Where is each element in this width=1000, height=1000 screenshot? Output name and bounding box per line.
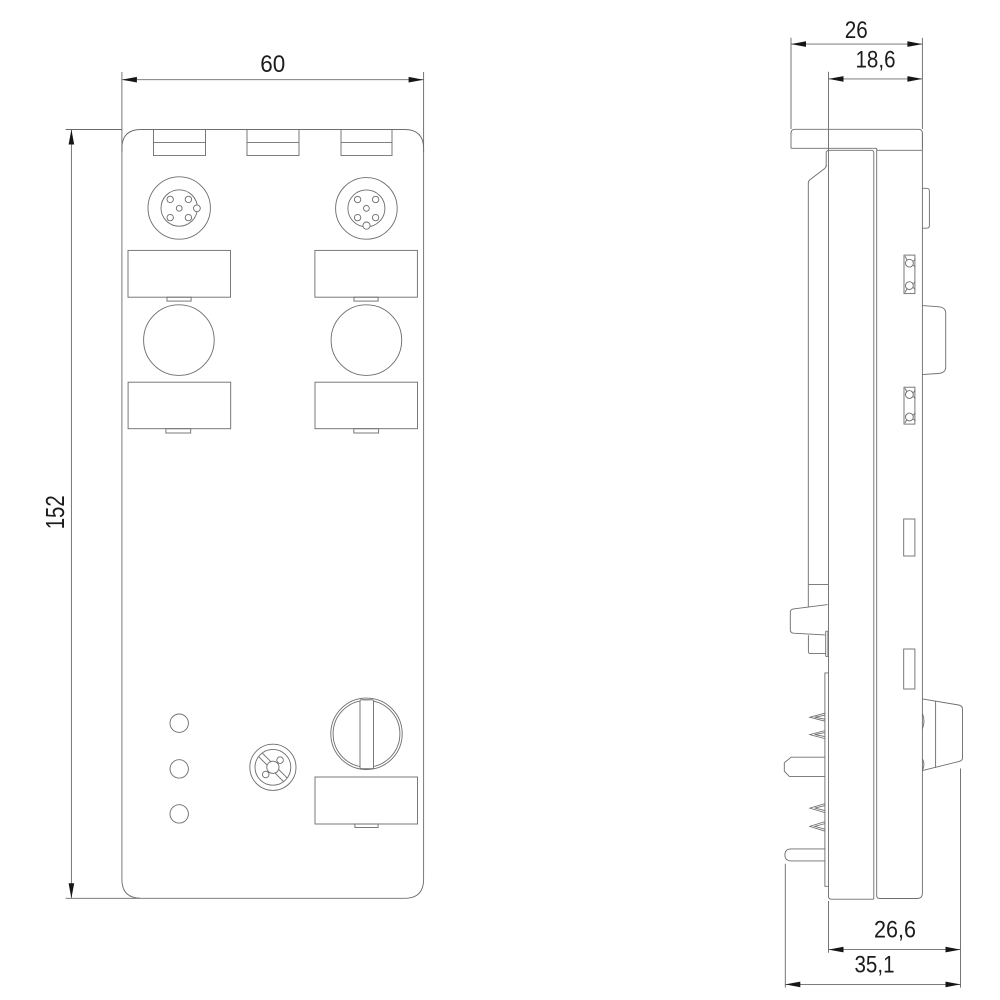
svg-text:60: 60	[260, 51, 285, 78]
svg-text:35,1: 35,1	[855, 952, 895, 979]
svg-text:26: 26	[845, 17, 868, 44]
svg-text:152: 152	[40, 495, 70, 529]
svg-text:26,6: 26,6	[874, 917, 916, 944]
svg-text:18,6: 18,6	[856, 47, 896, 74]
